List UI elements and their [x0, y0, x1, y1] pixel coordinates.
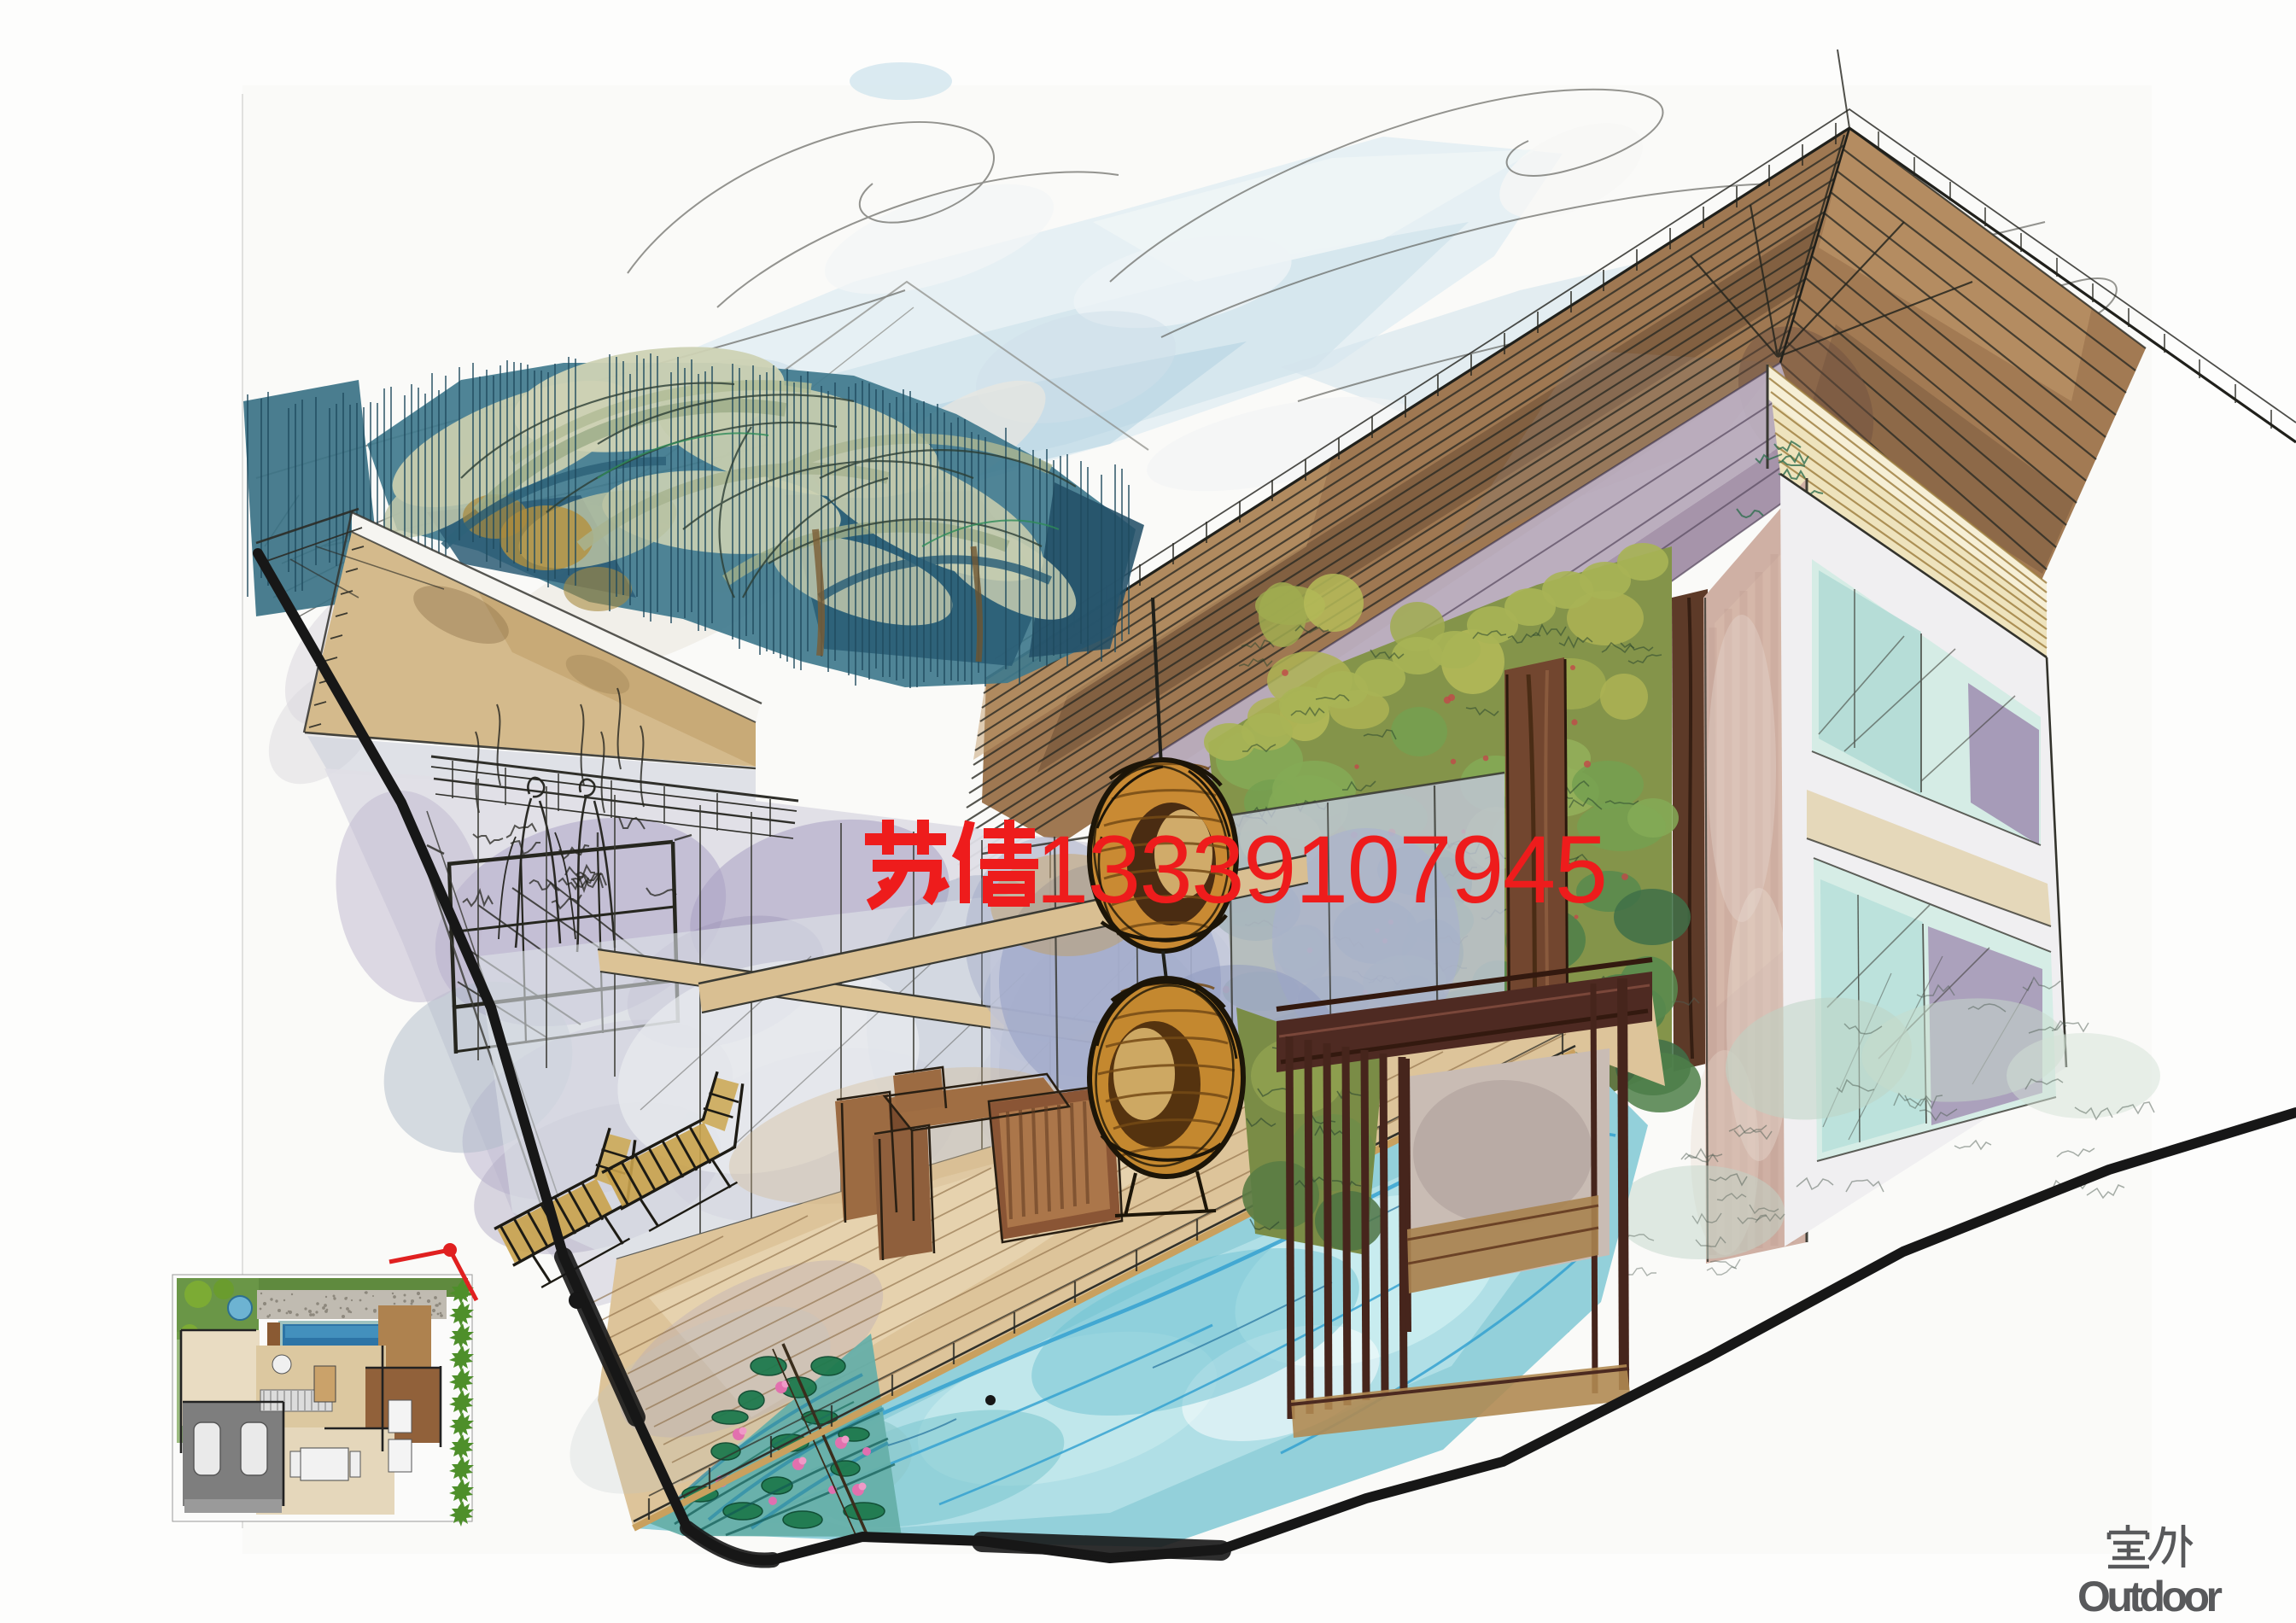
svg-text:13339107945: 13339107945: [1036, 816, 1608, 923]
svg-text:Outdoor: Outdoor: [2077, 1573, 2223, 1620]
